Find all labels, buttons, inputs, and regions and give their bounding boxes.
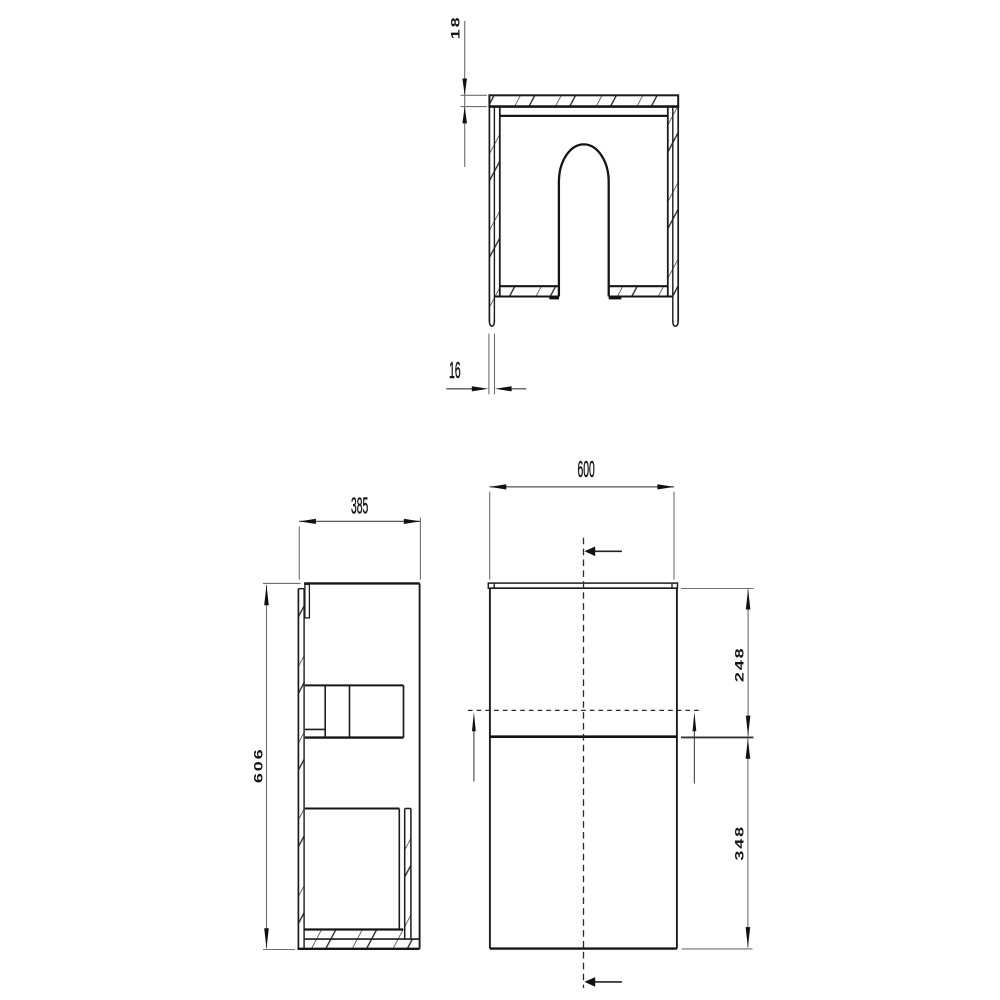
svg-text:348: 348	[733, 825, 747, 861]
svg-text:606: 606	[252, 747, 266, 783]
svg-text:16: 16	[449, 358, 461, 384]
svg-text:248: 248	[733, 646, 747, 682]
svg-text:18: 18	[449, 16, 463, 40]
svg-text:600: 600	[577, 456, 594, 482]
svg-text:385: 385	[351, 493, 368, 519]
